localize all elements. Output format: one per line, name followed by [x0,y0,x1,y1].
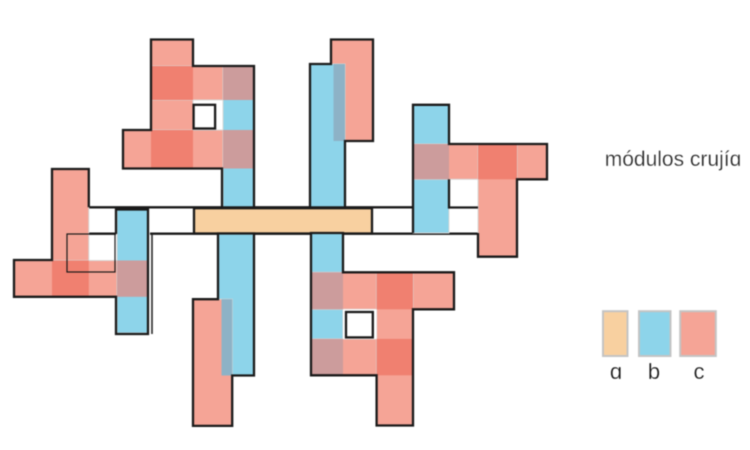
svg-text:b: b [648,359,660,384]
svg-text:ɑ: ɑ [610,359,622,384]
svg-text:módulos crujíɑ: módulos crujíɑ [605,148,742,171]
svg-text:c: c [694,359,705,384]
